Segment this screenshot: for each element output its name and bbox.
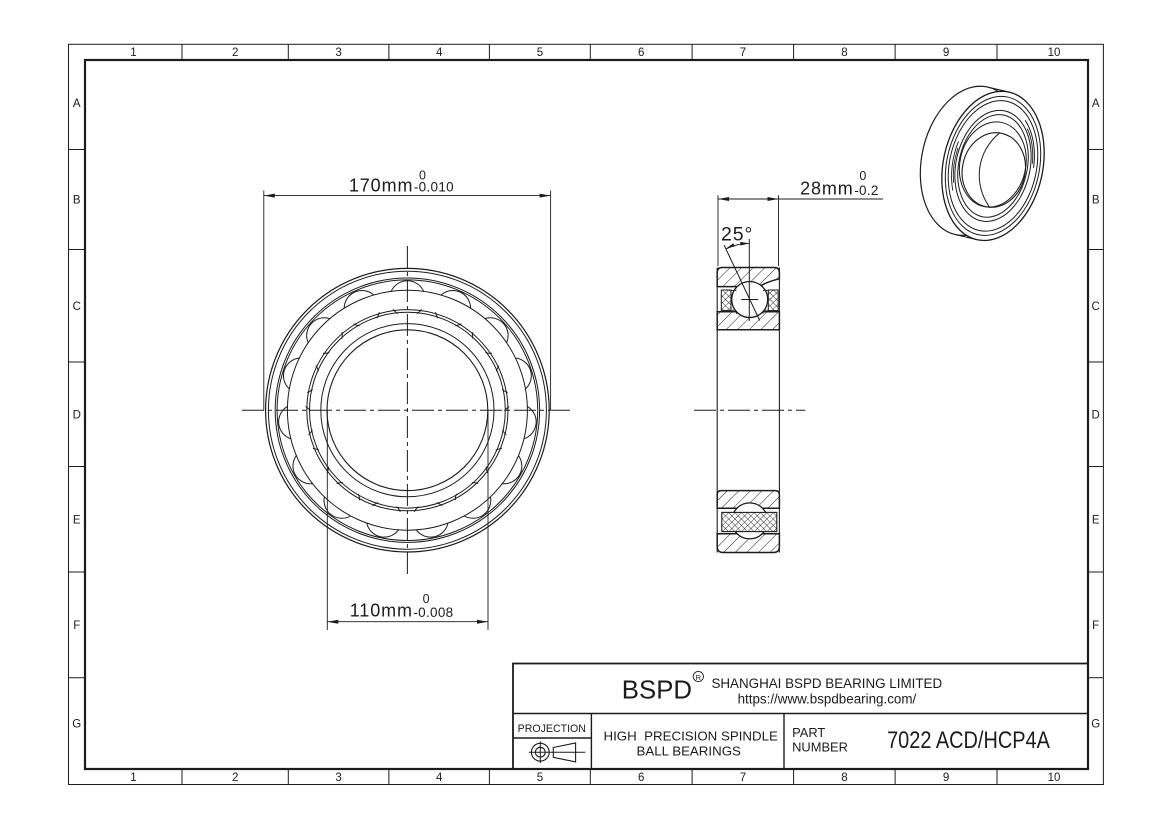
- svg-text:4: 4: [436, 772, 443, 784]
- svg-text:7022 ACD/HCP4A: 7022 ACD/HCP4A: [887, 726, 1050, 753]
- svg-text:5: 5: [537, 772, 543, 784]
- svg-text:C: C: [1092, 301, 1100, 313]
- svg-text:1: 1: [130, 47, 136, 59]
- svg-text:B: B: [73, 195, 81, 207]
- svg-text:3: 3: [335, 772, 341, 784]
- svg-text:R: R: [696, 673, 701, 682]
- svg-text:G: G: [1091, 718, 1100, 730]
- svg-text:PROJECTION: PROJECTION: [518, 723, 586, 735]
- svg-text:BALL BEARINGS: BALL BEARINGS: [636, 744, 741, 759]
- svg-text:7: 7: [740, 47, 746, 59]
- svg-text:2: 2: [232, 47, 238, 59]
- svg-text:0: 0: [859, 169, 866, 183]
- svg-text:E: E: [1092, 514, 1100, 526]
- svg-text:5: 5: [537, 47, 543, 59]
- svg-text:PART: PART: [792, 725, 825, 740]
- svg-text:NUMBER: NUMBER: [792, 740, 848, 755]
- svg-text:8: 8: [841, 47, 847, 59]
- svg-text:6: 6: [638, 47, 644, 59]
- svg-text:https://www.bspdbearing.com/: https://www.bspdbearing.com/: [738, 692, 917, 707]
- svg-text:2: 2: [232, 772, 238, 784]
- svg-text:10: 10: [1048, 772, 1061, 784]
- svg-text:D: D: [73, 409, 81, 421]
- svg-text:F: F: [1092, 620, 1099, 632]
- svg-text:7: 7: [740, 772, 746, 784]
- svg-text:4: 4: [436, 47, 443, 59]
- svg-text:28mm: 28mm: [800, 179, 854, 199]
- svg-text:-0.008: -0.008: [413, 605, 453, 620]
- svg-text:E: E: [73, 514, 81, 526]
- svg-text:6: 6: [638, 772, 644, 784]
- svg-text:F: F: [73, 620, 80, 632]
- svg-text:D: D: [1092, 409, 1100, 421]
- svg-text:BSPD: BSPD: [622, 676, 692, 704]
- svg-text:170mm: 170mm: [349, 175, 414, 195]
- svg-text:8: 8: [841, 772, 847, 784]
- svg-text:110mm: 110mm: [350, 601, 413, 621]
- svg-text:G: G: [72, 718, 81, 730]
- svg-text:-0.010: -0.010: [414, 180, 454, 195]
- svg-text:10: 10: [1048, 47, 1061, 59]
- svg-text:9: 9: [943, 47, 949, 59]
- svg-text:B: B: [1092, 195, 1100, 207]
- svg-text:SHANGHAI BSPD BEARING LIMITED: SHANGHAI BSPD BEARING LIMITED: [711, 676, 942, 691]
- svg-text:1: 1: [130, 772, 136, 784]
- svg-text:HIGH PRECISION SPINDLE: HIGH PRECISION SPINDLE: [604, 728, 779, 743]
- svg-text:A: A: [73, 98, 81, 110]
- svg-text:9: 9: [943, 772, 949, 784]
- svg-text:-0.2: -0.2: [854, 183, 878, 198]
- svg-text:A: A: [1092, 98, 1100, 110]
- svg-text:25°: 25°: [721, 223, 753, 245]
- svg-text:C: C: [73, 301, 81, 313]
- svg-text:3: 3: [335, 47, 341, 59]
